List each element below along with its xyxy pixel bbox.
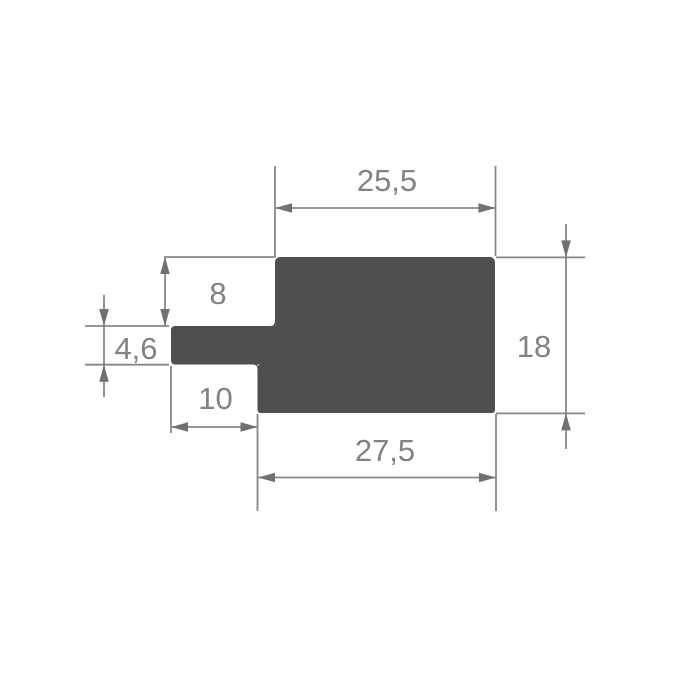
svg-text:27,5: 27,5 (355, 433, 415, 468)
svg-text:4,6: 4,6 (114, 331, 157, 366)
svg-text:8: 8 (209, 276, 226, 311)
svg-text:25,5: 25,5 (357, 163, 417, 198)
svg-text:18: 18 (517, 329, 551, 364)
svg-text:10: 10 (198, 381, 232, 416)
